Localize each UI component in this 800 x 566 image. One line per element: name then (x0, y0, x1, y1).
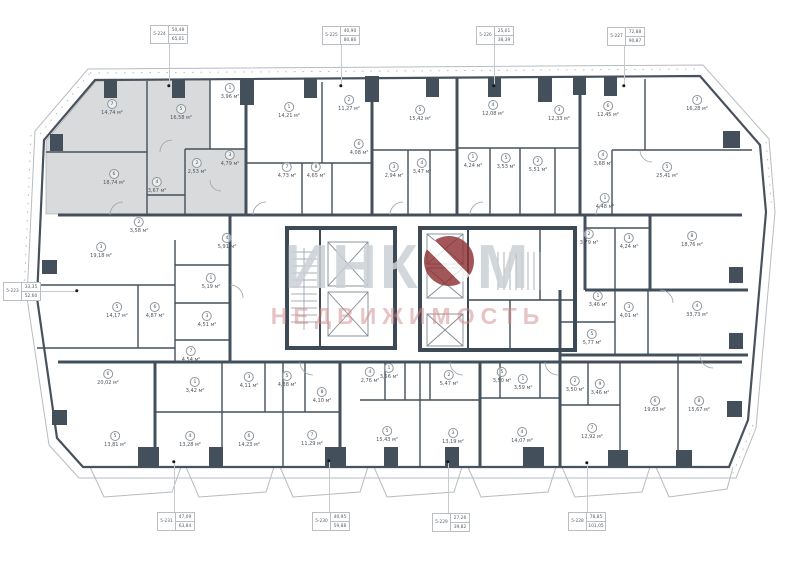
unit-total-area: 39,82 (451, 523, 469, 531)
room-number: 5 (110, 431, 120, 441)
room-area: 3,46 м² (591, 390, 610, 396)
room-number: 5 (282, 371, 292, 381)
unit-leader-line (329, 461, 330, 512)
room-label: 23,79 м² (580, 229, 599, 246)
room-number: 5 (176, 104, 186, 114)
room-number: 5 (415, 105, 425, 115)
room-number: 8 (311, 162, 321, 172)
room-number: 1 (225, 83, 235, 93)
room-number: 2 (584, 229, 594, 239)
room-label: 612,45 м² (597, 101, 619, 118)
room-label: 23,50 м² (566, 376, 585, 393)
room-label: 516,58 м² (170, 104, 192, 121)
room-number: 5 (497, 367, 507, 377)
room-area: 4,24 м² (464, 163, 483, 169)
room-number: 4 (417, 158, 427, 168)
room-number: 6 (103, 369, 113, 379)
room-label: 93,46 м² (591, 379, 610, 396)
room-number: 4 (517, 427, 527, 437)
room-label: 34,51 м² (198, 311, 217, 328)
room-area: 4,38 м² (278, 382, 297, 388)
unit-leader-line (624, 46, 625, 86)
room-area: 4,79 м² (221, 161, 240, 167)
unit-leader-line (448, 462, 449, 513)
room-label: 712,92 м² (581, 423, 603, 440)
room-number: 1 (206, 273, 216, 283)
core (287, 228, 575, 350)
room-label: 711,29 м² (301, 430, 323, 447)
room-label: 64,08 м² (350, 139, 369, 156)
room-area: 4,10 м² (313, 398, 332, 404)
unit-id: 5-224 (151, 26, 169, 43)
room-area: 19,18 м² (90, 253, 112, 259)
room-number: 4 (152, 177, 162, 187)
unit-id: 5-231 (158, 513, 176, 530)
room-label: 74,54 м² (182, 346, 201, 363)
room-number: 4 (222, 233, 232, 243)
unit-total-area: 80,86 (341, 36, 359, 44)
room-number: 2 (533, 156, 543, 166)
unit-leader-line (341, 45, 342, 86)
floor-plan-drawing (0, 0, 800, 566)
room-area: 3,42 м² (186, 388, 205, 394)
balcony-sawtooth (90, 467, 733, 497)
room-number: 5 (501, 153, 511, 163)
room-area: 4,11 м² (240, 383, 259, 389)
room-number: 6 (354, 139, 364, 149)
room-label: 319,18 м² (90, 242, 112, 259)
unit-label-5-230: 5-23040,9559,88 (312, 512, 350, 531)
room-label: 74,73 м² (278, 162, 297, 179)
unit-living-area: 40,95 (331, 513, 349, 522)
room-number: 1 (593, 291, 603, 301)
unit-total-area: 101,05 (587, 522, 605, 530)
room-number: 8 (694, 396, 704, 406)
room-area: 13,28 м² (179, 442, 201, 448)
unit-living-area: 50,48 (169, 26, 187, 35)
room-number: 7 (107, 99, 117, 109)
room-label: 13,59 м² (514, 374, 533, 391)
room-number: 7 (186, 346, 196, 356)
room-area: 4,08 м² (350, 150, 369, 156)
unit-id: 5-223 (4, 283, 22, 300)
stairs-left (291, 248, 317, 330)
room-label: 84,65 м² (307, 162, 326, 179)
unit-total-area: 65,01 (169, 35, 187, 43)
room-label: 618,74 м² (103, 169, 125, 186)
room-area: 5,47 м² (440, 381, 459, 387)
room-area: 3,58 м² (130, 228, 149, 234)
room-area: 20,02 м² (97, 380, 119, 386)
room-number: 5 (662, 162, 672, 172)
unit-label-5-226: 5-22625,0138,39 (476, 26, 514, 45)
room-area: 12,45 м² (597, 112, 619, 118)
room-number: 3 (202, 311, 212, 321)
floor-plan: 714,74 м²516,58 м²13,96 м²618,74 м²22,53… (0, 0, 800, 566)
room-number: 9 (595, 379, 605, 389)
room-area: 3,50 м² (493, 378, 512, 384)
room-number: 3 (624, 233, 634, 243)
room-number: 6 (244, 431, 254, 441)
room-area: 3,47 м² (413, 169, 432, 175)
room-label: 53,53 м² (497, 153, 516, 170)
room-number: 6 (650, 396, 660, 406)
room-label: 13,46 м² (589, 291, 608, 308)
room-area: 12,08 м² (482, 111, 504, 117)
unit-label-5-224: 5-22450,4865,01 (150, 25, 188, 44)
room-number: 3 (244, 372, 254, 382)
room-label: 43,68 м² (594, 150, 613, 167)
unit-leader-line (41, 291, 77, 292)
unit-living-area: 25,01 (495, 27, 513, 36)
room-label: 32,94 м² (385, 162, 404, 179)
room-area: 14,21 м² (278, 113, 300, 119)
room-area: 14,17 м² (106, 313, 128, 319)
room-label: 14,24 м² (464, 152, 483, 169)
room-label: 14,48 м² (596, 193, 615, 210)
room-area: 5,77 м² (583, 340, 602, 346)
room-label: 13,96 м² (221, 83, 240, 100)
room-area: 3,59 м² (514, 385, 533, 391)
room-number: 2 (192, 158, 202, 168)
room-label: 43,47 м² (413, 158, 432, 175)
room-area: 4,51 м² (198, 322, 217, 328)
room-area: 18,76 м² (681, 242, 703, 248)
room-label: 313,19 м² (442, 428, 464, 445)
room-label: 412,08 м² (482, 100, 504, 117)
unit-id: 5-226 (477, 27, 495, 44)
room-label: 34,79 м² (221, 150, 240, 167)
room-area: 2,76 м² (361, 378, 380, 384)
room-area: 3,96 м² (221, 94, 240, 100)
room-area: 5,51 м² (529, 167, 548, 173)
unit-id: 5-228 (569, 513, 587, 530)
room-label: 54,38 м² (278, 371, 297, 388)
room-area: 15,43 м² (376, 437, 398, 443)
unit-id: 5-227 (608, 28, 626, 45)
room-area: 33,73 м² (686, 312, 708, 318)
room-label: 25,51 м² (529, 156, 548, 173)
room-label: 64,87 м² (146, 302, 165, 319)
room-number: 5 (382, 426, 392, 436)
unit-label-5-225: 5-22540,9080,86 (322, 26, 360, 45)
unit-label-5-227: 5-22772,8890,87 (607, 27, 645, 46)
unit-living-area: 72,88 (626, 28, 644, 37)
unit-total-area: 63,84 (176, 522, 194, 530)
room-area: 2,94 м² (385, 173, 404, 179)
stairs-right (498, 252, 540, 290)
unit-living-area: 40,90 (341, 27, 359, 36)
unit-label-5-229: 5-22927,2639,82 (432, 513, 470, 532)
room-area: 11,27 м² (338, 106, 360, 112)
room-area: 19,63 м² (644, 407, 666, 413)
room-label: 34,24 м² (620, 233, 639, 250)
room-label: 45,91 м² (218, 233, 237, 250)
room-label: 23,58 м² (130, 217, 149, 234)
room-area: 16,28 м² (686, 106, 708, 112)
room-label: 525,41 м² (656, 162, 678, 179)
room-label: 25,47 м² (440, 370, 459, 387)
highlighted-unit-fill (46, 80, 246, 214)
room-area: 18,74 м² (103, 180, 125, 186)
room-number: 3 (389, 162, 399, 172)
room-label: 312,33 м² (548, 105, 570, 122)
room-area: 12,33 м² (548, 116, 570, 122)
unit-total-area: 59,88 (331, 522, 349, 530)
room-label: 815,67 м² (688, 396, 710, 413)
room-area: 3,79 м² (580, 240, 599, 246)
room-label: 13,42 м² (186, 377, 205, 394)
room-number: 2 (444, 370, 454, 380)
room-label: 22,53 м² (188, 158, 207, 175)
room-area: 4,24 м² (620, 244, 639, 250)
room-number: 3 (96, 242, 106, 252)
room-number: 1 (600, 193, 610, 203)
room-label: 211,27 м² (338, 95, 360, 112)
unit-id: 5-229 (433, 514, 451, 531)
unit-leader-line (587, 463, 588, 512)
room-number: 4 (598, 150, 608, 160)
room-area: 16,58 м² (170, 115, 192, 121)
room-area: 3,46 м² (589, 302, 608, 308)
room-area: 5,91 м² (218, 244, 237, 250)
room-area: 4,87 м² (146, 313, 165, 319)
room-area: 3,53 м² (497, 164, 516, 170)
room-label: 716,28 м² (686, 95, 708, 112)
room-area: 4,01 м² (620, 313, 639, 319)
room-label: 42,76 м² (361, 367, 380, 384)
room-number: 8 (687, 231, 697, 241)
room-number: 4 (692, 301, 702, 311)
room-label: 619,63 м² (644, 396, 666, 413)
room-label: 614,23 м² (238, 431, 260, 448)
room-area: 12,92 м² (581, 434, 603, 440)
room-area: 4,65 м² (307, 173, 326, 179)
unit-id: 5-225 (323, 27, 341, 44)
room-label: 433,73 м² (686, 301, 708, 318)
room-label: 34,11 м² (240, 372, 259, 389)
room-label: 84,10 м² (313, 387, 332, 404)
room-label: 43,67 м² (148, 177, 167, 194)
room-number: 2 (570, 376, 580, 386)
room-number: 7 (282, 162, 292, 172)
room-area: 13,19 м² (442, 439, 464, 445)
room-number: 6 (150, 302, 160, 312)
unit-living-area: 78,85 (587, 513, 605, 522)
room-label: 55,77 м² (583, 329, 602, 346)
room-number: 7 (692, 95, 702, 105)
unit-living-area: 33,35 (22, 283, 40, 292)
room-area: 3,56 м² (380, 374, 399, 380)
room-number: 4 (185, 431, 195, 441)
unit-total-area: 38,39 (495, 36, 513, 44)
room-label: 13,56 м² (380, 363, 399, 380)
unit-id: 5-230 (313, 513, 331, 530)
unit-leader-line (169, 44, 170, 86)
room-area: 2,53 м² (188, 169, 207, 175)
room-area: 13,81 м² (104, 442, 126, 448)
room-number: 7 (587, 423, 597, 433)
room-number: 6 (603, 101, 613, 111)
unit-living-area: 47,09 (176, 513, 194, 522)
unit-label-5-223: 5-22333,3552,60 (3, 282, 41, 301)
room-number: 3 (448, 428, 458, 438)
room-area: 14,07 м² (511, 438, 533, 444)
room-label: 34,01 м² (620, 302, 639, 319)
unit-leader-line (494, 45, 495, 86)
room-number: 5 (587, 329, 597, 339)
room-number: 5 (112, 302, 122, 312)
unit-total-area: 90,87 (626, 37, 644, 45)
unit-label-5-228: 5-22878,85101,05 (568, 512, 606, 531)
room-label: 515,43 м² (376, 426, 398, 443)
unit-total-area: 52,60 (22, 292, 40, 300)
room-label: 15,19 м² (202, 273, 221, 290)
room-number: 4 (365, 367, 375, 377)
room-number: 2 (344, 95, 354, 105)
room-label: 818,76 м² (681, 231, 703, 248)
room-area: 15,42 м² (409, 116, 431, 122)
room-number: 1 (284, 102, 294, 112)
room-number: 2 (134, 217, 144, 227)
unit-label-5-231: 5-23147,0963,84 (157, 512, 195, 531)
room-number: 1 (384, 363, 394, 373)
room-number: 1 (518, 374, 528, 384)
room-area: 3,67 м² (148, 188, 167, 194)
unit-leader-line (174, 462, 175, 512)
room-area: 14,23 м² (238, 442, 260, 448)
room-number: 3 (554, 105, 564, 115)
room-label: 515,42 м² (409, 105, 431, 122)
room-area: 11,29 м² (301, 441, 323, 447)
room-area: 14,74 м² (101, 110, 123, 116)
unit-living-area: 27,26 (451, 514, 469, 523)
room-number: 4 (488, 100, 498, 110)
room-area: 3,68 м² (594, 161, 613, 167)
room-number: 3 (225, 150, 235, 160)
room-number: 7 (307, 430, 317, 440)
room-area: 25,41 м² (656, 173, 678, 179)
room-number: 1 (190, 377, 200, 387)
room-label: 413,28 м² (179, 431, 201, 448)
room-label: 514,17 м² (106, 302, 128, 319)
room-number: 1 (468, 152, 478, 162)
room-area: 15,67 м² (688, 407, 710, 413)
room-area: 5,19 м² (202, 284, 221, 290)
room-area: 4,73 м² (278, 173, 297, 179)
room-number: 6 (109, 169, 119, 179)
room-label: 714,74 м² (101, 99, 123, 116)
room-label: 53,50 м² (493, 367, 512, 384)
room-label: 414,07 м² (511, 427, 533, 444)
room-label: 620,02 м² (97, 369, 119, 386)
room-area: 4,54 м² (182, 357, 201, 363)
room-number: 3 (624, 302, 634, 312)
room-label: 114,21 м² (278, 102, 300, 119)
room-label: 513,81 м² (104, 431, 126, 448)
room-area: 3,50 м² (566, 387, 585, 393)
room-number: 8 (317, 387, 327, 397)
room-area: 4,48 м² (596, 204, 615, 210)
